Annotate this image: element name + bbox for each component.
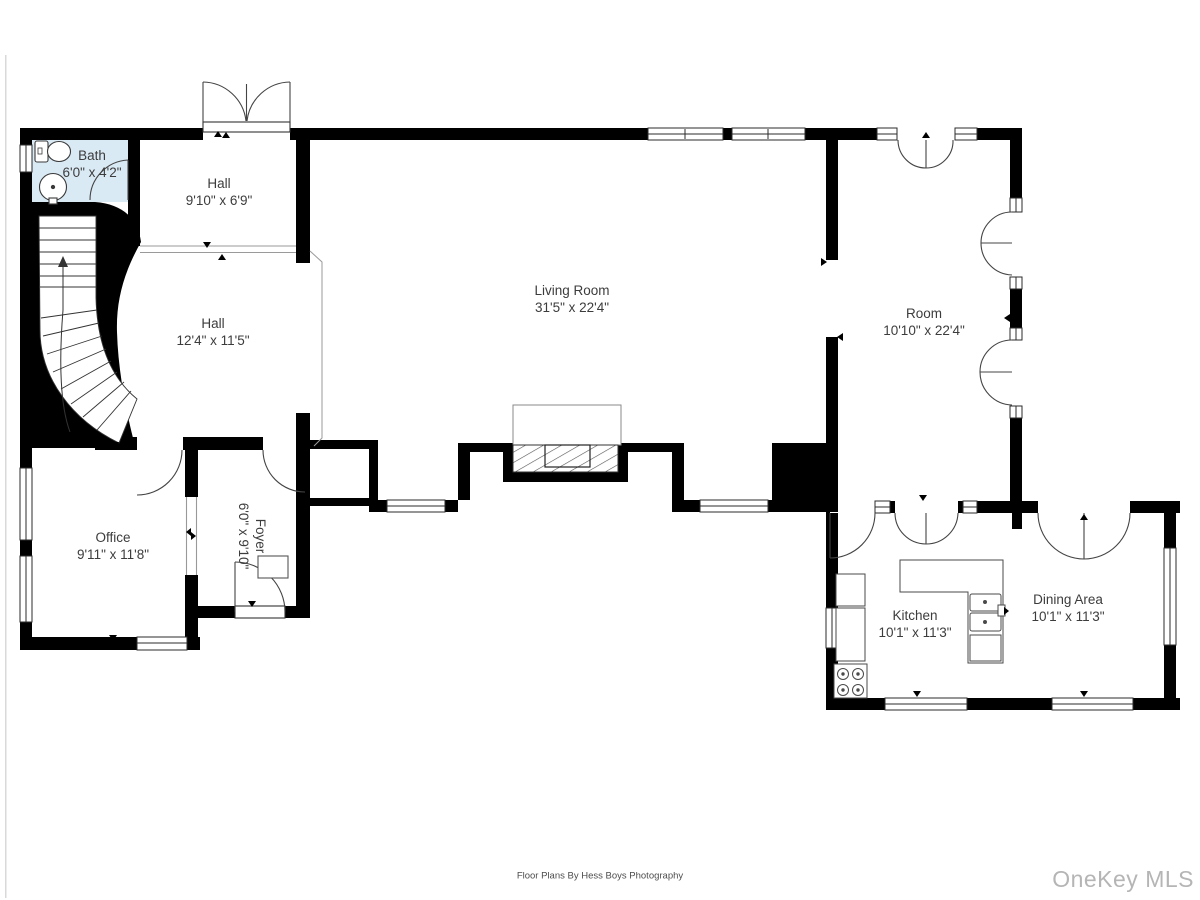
window [700,500,768,512]
kitchen-cabinet [836,608,865,661]
window [1010,277,1022,289]
window [1010,198,1022,212]
room-french-door-lower [980,340,1012,405]
kitchen-double-door [895,513,958,544]
curved-staircase [20,202,141,448]
entry-double-door [203,82,290,132]
office-door [137,450,182,495]
hearth [513,405,621,445]
window [20,556,32,622]
kitchen-fixtures [834,560,1005,698]
window [387,500,445,512]
refrigerator-icon [836,574,865,606]
window [20,145,32,172]
floor-plan-canvas: Bath6'0" x 4'2"Hall9'10" x 6'9"Hall12'4"… [0,0,1200,900]
footer-credit: Floor Plans By Hess Boys Photography [517,871,683,882]
window [137,637,187,650]
window [885,698,967,710]
window [732,128,805,140]
room-french-door-upper [981,212,1012,275]
fireplace [513,405,621,472]
stove-icon [834,664,867,698]
window [648,128,723,140]
watermark: OneKey MLS [1052,866,1194,893]
window [877,128,897,140]
floor-plan-drawing [0,0,1200,900]
window [1010,328,1022,340]
kitchen-sink-icon [970,594,1005,631]
toilet-icon [35,141,71,162]
dishwasher-icon [970,635,1001,661]
room-double-door [898,140,953,168]
doors [90,82,1130,618]
window [1010,406,1022,418]
page-edge-line [5,55,7,898]
window [963,501,977,513]
window [20,468,32,540]
window [875,501,890,513]
front-door [235,556,288,618]
window [1052,698,1133,710]
window [1164,548,1176,645]
cased-openings [140,246,322,446]
window [955,128,977,140]
